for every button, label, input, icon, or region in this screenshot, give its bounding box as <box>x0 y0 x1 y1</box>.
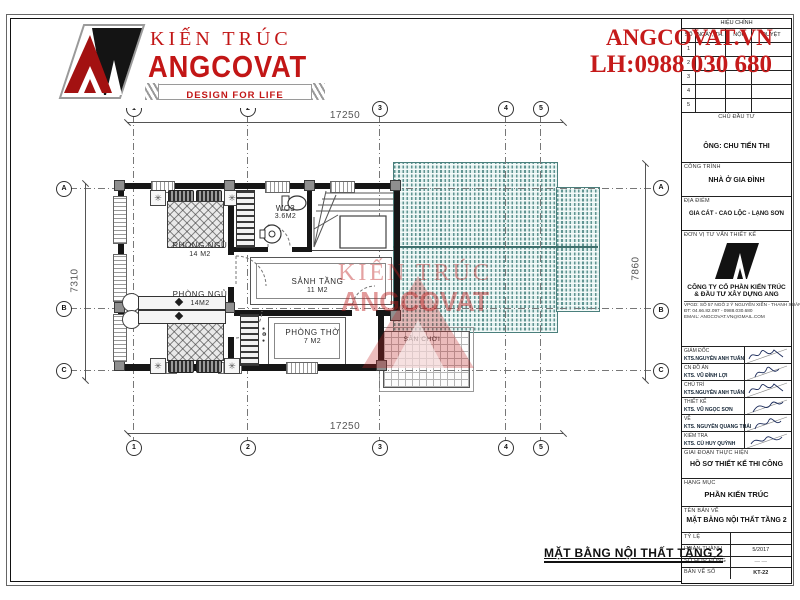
stage-value: HỒ SƠ THIẾT KẾ THI CÔNG <box>682 461 791 468</box>
sig-name: KTS.NGUYỄN ANH TUẤN <box>684 356 742 362</box>
room-label-bedroom1: PHÒNG NGỦ <box>150 241 250 250</box>
roof-extension <box>556 187 600 312</box>
window <box>286 362 318 374</box>
room-label-hall: SẢNH TẦNG <box>270 277 365 286</box>
consultant-logo-icon <box>715 241 759 281</box>
pillow <box>196 360 222 373</box>
consultant-company-line2: & ĐẦU TƯ XÂY DỰNG ANG <box>682 291 791 298</box>
investor-cell: CHỦ ĐẦU TƯ ÔNG: CHU TIẾN THI <box>682 113 791 163</box>
project-cell: CÔNG TRÌNH NHÀ Ở GIA ĐÌNH <box>682 163 791 197</box>
sig-role: KIỂM TRA <box>684 433 742 439</box>
consultant-tel: ĐT: 04.66.82.097 - 0988.030.680 <box>684 309 790 314</box>
tagline-hatch-right <box>311 83 325 100</box>
logo-triangle-icon <box>58 22 146 102</box>
room-area-hall: 11 M2 <box>270 287 365 294</box>
sig-role: THIẾT KẾ <box>684 399 742 405</box>
column-marker <box>390 310 401 321</box>
dim-line-right <box>645 163 646 380</box>
grid-bubble-right-B: B <box>653 303 669 319</box>
meta-label: TỶ LỆ <box>682 533 731 544</box>
dim-left-value: 7310 <box>70 251 81 311</box>
sig-role: CHỦ TRÌ <box>684 382 742 388</box>
grid-line-4 <box>505 115 506 441</box>
window <box>113 196 127 244</box>
logo-tagline: DESIGN FOR LIFE <box>186 90 283 101</box>
stage-cell: GIAI ĐOẠN THỰC HIỆN HỒ SƠ THIẾT KẾ THI C… <box>682 449 791 479</box>
contact-website: ANGCOVAT.VN <box>606 25 773 51</box>
pillow <box>168 360 194 373</box>
signature <box>745 347 791 363</box>
signature <box>745 381 791 397</box>
wardrobe <box>236 190 255 248</box>
grid-bubble-bottom-3: 3 <box>372 440 388 456</box>
wall-right-upper <box>394 183 400 316</box>
consultant-office: VPGD: SỐ 57 NGÕ 2 Ý NGUYỄN XIỂN - THANH … <box>684 303 790 308</box>
meta-value: 5/2017 <box>731 545 791 556</box>
grid-line-1 <box>133 115 134 441</box>
signature <box>745 432 791 448</box>
room-area-bedroom2: 14M2 <box>150 300 250 307</box>
drawing-name-value: MẶT BẰNG NỘI THẤT TẦNG 2 <box>682 517 791 524</box>
meta-label: BẢN VẼ SỐ <box>682 568 731 579</box>
signature-row: KIỂM TRA KTS. CÙ HUY QUỲNH <box>682 432 791 449</box>
column-marker <box>376 360 387 371</box>
drawing-name-label: TÊN BẢN VẼ <box>682 507 791 515</box>
sig-name: KTS. VŨ ĐÌNH LỢI <box>684 373 742 379</box>
dim-right-value: 7860 <box>631 239 642 299</box>
revision-row-num: 4 <box>682 85 696 99</box>
wardrobe <box>240 314 259 366</box>
sig-name: KTS. VŨ NGỌC SƠN <box>684 407 742 413</box>
grid-bubble-right-C: C <box>653 363 669 379</box>
dim-bottom-value: 17250 <box>315 421 375 432</box>
location-cell: ĐỊA ĐIỂM GIA CÁT - CAO LỘC - LẠNG SƠN <box>682 197 791 231</box>
grid-bubble-left-B: B <box>56 301 72 317</box>
grid-bubble-top-5: 5 <box>533 101 549 117</box>
grid-bubble-bottom-1: 1 <box>126 440 142 456</box>
grid-bubble-bottom-2: 2 <box>240 440 256 456</box>
room-label-worship: PHÒNG THỜ <box>265 328 360 337</box>
title-block: HIỆU CHỈNH SỐ NGÀY, TH. NỘI DUNG DUYỆT 1… <box>681 18 792 584</box>
grid-bubble-bottom-4: 4 <box>498 440 514 456</box>
column-marker <box>114 180 125 191</box>
sig-role: GIÁM ĐỐC <box>684 348 742 354</box>
category-cell: HẠNG MỤC PHẦN KIẾN TRÚC <box>682 479 791 507</box>
room-area-wc: 3.6M2 <box>258 213 313 220</box>
sig-name: KTS. NGUYỄN QUANG THÁI <box>684 424 742 430</box>
meta-value <box>731 533 791 544</box>
meta-value: — — <box>731 557 791 568</box>
project-label: CÔNG TRÌNH <box>682 163 791 171</box>
dim-top-value: 17250 <box>315 110 375 121</box>
dim-line-left <box>85 183 86 380</box>
sig-name: KTS. CÙ HUY QUỲNH <box>684 441 742 447</box>
category-value: PHẦN KIẾN TRÚC <box>682 490 791 499</box>
grid-line-5 <box>540 115 541 441</box>
signature <box>745 364 791 380</box>
sig-role: CN ĐỒ ÁN <box>684 365 742 371</box>
grid-bubble-left-C: C <box>56 363 72 379</box>
signature-row: CHỦ TRÌ KTS.NGUYỄN ANH TUẤN <box>682 381 791 398</box>
logo-brand-main: ANGCOVAT <box>148 49 307 85</box>
drawing-name-cell: TÊN BẢN VẼ MẶT BẰNG NỘI THẤT TẦNG 2 <box>682 507 791 533</box>
consultant-cell: ĐƠN VỊ TƯ VẤN THIẾT KẾ CÔNG TY CỔ PHẦN K… <box>682 231 791 347</box>
wc-fixtures <box>258 192 310 248</box>
room-label-playground: SÂN CHƠI <box>386 336 458 343</box>
stair-edge-line <box>312 250 394 251</box>
grid-bubble-bottom-5: 5 <box>533 440 549 456</box>
consultant-email: EMAIL: ANGCOVAT.VN@GMAIL.COM <box>684 315 790 320</box>
nightstand-fan-icon: ✳ <box>224 358 240 374</box>
signature-row: THIẾT KẾ KTS. VŨ NGỌC SƠN <box>682 398 791 415</box>
project-name: NHÀ Ở GIA ĐÌNH <box>682 177 791 184</box>
investor-label: CHỦ ĐẦU TƯ <box>682 113 791 121</box>
tagline-hatch-left <box>145 83 159 100</box>
category-label: HẠNG MỤC <box>682 479 791 487</box>
location-name: GIA CÁT - CAO LỘC - LẠNG SƠN <box>682 211 791 217</box>
logo-tagline-band: DESIGN FOR LIFE <box>158 84 312 100</box>
stage-label: GIAI ĐOẠN THỰC HIỆN <box>682 449 791 457</box>
location-label: ĐỊA ĐIỂM <box>682 197 791 205</box>
staircase <box>312 189 394 250</box>
contact-phone: LH:0988 030 680 <box>590 51 772 79</box>
room-label-bedroom2: PHÒNG NGỦ <box>150 290 250 299</box>
sig-role: VẼ <box>684 416 742 422</box>
signature <box>745 415 791 431</box>
dim-line-top <box>127 122 563 123</box>
signature-row: GIÁM ĐỐC KTS.NGUYỄN ANH TUẤN <box>682 347 791 364</box>
drawing-caption: MẶT BẰNG NỘI THẤT TẦNG 2 <box>544 546 723 563</box>
revision-row-num: 5 <box>682 99 696 113</box>
consultant-label: ĐƠN VỊ TƯ VẤN THIẾT KẾ <box>682 231 791 239</box>
wall-worship-right <box>378 316 384 364</box>
grid-bubble-left-A: A <box>56 181 72 197</box>
sig-name: KTS.NGUYỄN ANH TUẤN <box>684 390 742 396</box>
dim-line-bottom <box>127 433 563 434</box>
room-area-worship: 7 M2 <box>265 338 360 345</box>
nightstand-fan-icon: ✳ <box>150 358 166 374</box>
meta-value: KT-22 <box>731 568 791 579</box>
signature <box>745 398 791 414</box>
signature-row: CN ĐỒ ÁN KTS. VŨ ĐÌNH LỢI <box>682 364 791 381</box>
company-logo: KIẾN TRÚC ANGCOVAT DESIGN FOR LIFE <box>58 22 338 108</box>
roof-ridge-line <box>393 246 598 248</box>
room-label-wc: WC3 <box>258 204 313 213</box>
grid-line-2 <box>247 115 248 441</box>
drawing-sheet: KIẾN TRÚC ANGCOVAT DESIGN FOR LIFE ANGCO… <box>0 0 800 600</box>
grid-bubble-right-A: A <box>653 180 669 196</box>
signature-row: VẼ KTS. NGUYỄN QUANG THÁI <box>682 415 791 432</box>
room-area-bedroom1: 14 M2 <box>150 251 250 258</box>
grid-bubble-top-4: 4 <box>498 101 514 117</box>
nightstand-fan-icon: ✳ <box>150 190 166 206</box>
consultant-company-line1: CÔNG TY CỔ PHẦN KIẾN TRÚC <box>682 284 791 291</box>
grid-bubble-top-3: 3 <box>372 101 388 117</box>
investor-name: ÔNG: CHU TIẾN THI <box>682 143 791 150</box>
logo-brand-top: KIẾN TRÚC <box>150 28 292 51</box>
